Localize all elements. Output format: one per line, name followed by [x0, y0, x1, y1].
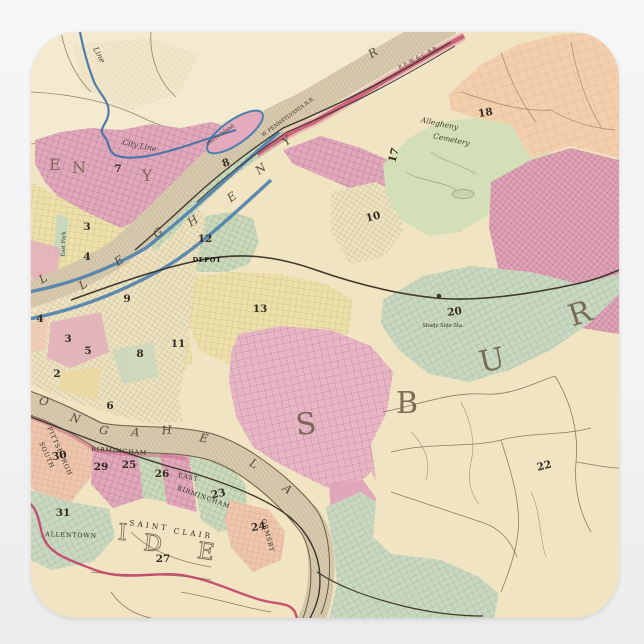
ward-numbers-label: 5 [84, 345, 91, 357]
place-labels-label: DEPOT [193, 256, 222, 264]
ward-numbers-label: 31 [56, 507, 71, 519]
ward-numbers-label: 26 [155, 468, 170, 480]
place-labels-label: East Park [61, 230, 68, 256]
ward-numbers-label: 2 [53, 368, 60, 380]
ward-numbers-label: 6 [106, 400, 113, 412]
ward-numbers-label: 25 [122, 459, 137, 471]
ward-numbers-label: 4 [83, 251, 90, 263]
district-letters-label: B [396, 386, 418, 421]
outline-letters-label: D [142, 530, 163, 558]
ward-numbers-label: 20 [447, 305, 463, 319]
ward-numbers-label: 9 [123, 293, 130, 305]
outline-letters-label: I [117, 520, 128, 547]
ward-numbers-label: 11 [171, 338, 186, 350]
district-letters-small-label: N [72, 158, 86, 177]
ward-numbers-label: 12 [198, 233, 213, 245]
monongahela-river-letters-label: A [130, 425, 141, 440]
outline-letters-label: E [196, 538, 216, 566]
district-letters-small-label: Y [141, 166, 153, 185]
ward-numbers-label: 18 [477, 106, 493, 120]
district-letters-small-label: E [49, 155, 61, 174]
ward-numbers-label: 7 [114, 163, 121, 175]
ward-numbers-label: 3 [83, 221, 90, 233]
monongahela-river-letters-label: H [160, 423, 173, 438]
ward-numbers-label: 4 [36, 313, 43, 325]
ward-numbers-label: 29 [94, 461, 109, 473]
district-letters-label: S [294, 406, 318, 443]
place-labels-label: Shady Side Sta. [422, 323, 464, 329]
ward-numbers-label: 13 [253, 303, 268, 315]
ward-numbers-label: 3 [64, 333, 71, 345]
map-sticker: 7348935248612131110171820223029252623243… [31, 32, 619, 618]
vintage-map: 7348935248612131110171820223029252623243… [31, 32, 619, 618]
ward-numbers-label: 8 [136, 348, 143, 360]
